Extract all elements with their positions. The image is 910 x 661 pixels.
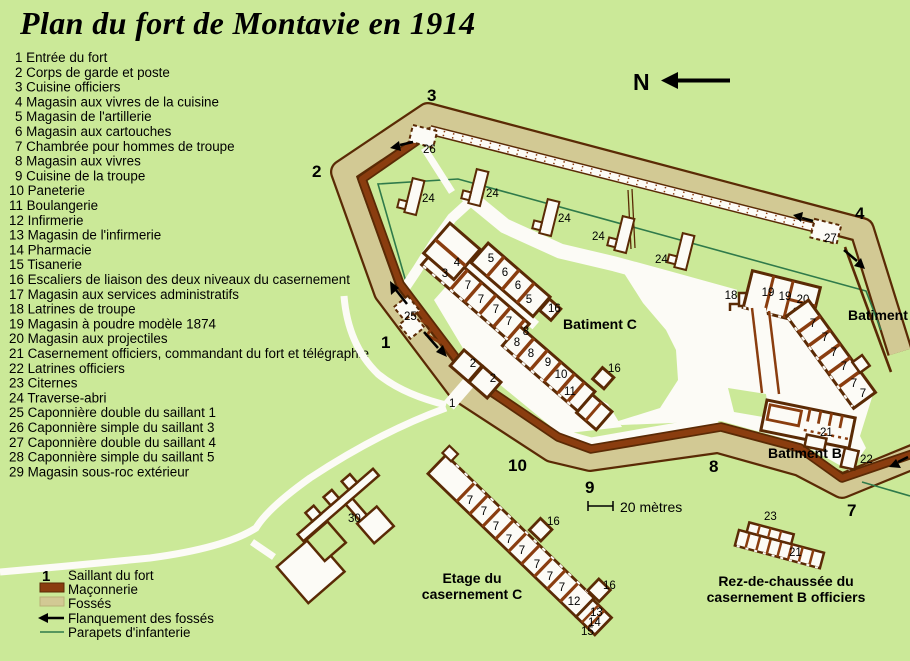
svg-text:5: 5 [488,253,494,265]
svg-text:25 Caponnière double du sailla: 25 Caponnière double du saillant 1 [9,405,216,420]
svg-text:Batiment C: Batiment C [563,316,637,332]
svg-text:18: 18 [725,290,738,302]
svg-text:27 Caponnière double du sailla: 27 Caponnière double du saillant 4 [9,435,217,450]
svg-text:18 Latrines de troupe: 18 Latrines de troupe [9,302,136,317]
svg-text:7: 7 [534,559,540,571]
svg-text:7: 7 [810,318,816,330]
svg-text:9: 9 [545,357,551,369]
svg-text:4: 4 [454,257,461,269]
svg-text:24: 24 [486,188,499,200]
svg-text:16 Escaliers de liaison des de: 16 Escaliers de liaison des deux niveaux… [9,272,350,287]
svg-text:3: 3 [427,86,436,105]
svg-text:1 Entrée du fort: 1 Entrée du fort [15,50,108,65]
svg-text:24: 24 [422,193,435,205]
svg-text:Fossés: Fossés [68,596,111,611]
svg-text:2: 2 [470,358,476,370]
svg-text:8 Magasin aux vivres: 8 Magasin aux vivres [15,154,141,169]
svg-text:2: 2 [490,373,496,385]
svg-text:7: 7 [822,332,828,344]
svg-text:6 Magasin aux cartouches: 6 Magasin aux cartouches [15,124,172,139]
svg-text:6: 6 [515,280,521,292]
svg-text:13 Magasin de l'infirmerie: 13 Magasin de l'infirmerie [9,228,161,243]
svg-text:21: 21 [789,547,802,559]
svg-text:7: 7 [467,495,473,507]
svg-text:2 Corps de garde et poste: 2 Corps de garde et poste [15,65,170,80]
svg-text:24: 24 [655,254,668,266]
svg-text:7: 7 [547,571,553,583]
svg-text:23 Citernes: 23 Citernes [9,376,78,391]
svg-text:2: 2 [312,162,321,181]
svg-text:7: 7 [847,501,856,520]
svg-text:28 Caponnière simple du sailla: 28 Caponnière simple du saillant 5 [9,450,214,465]
svg-text:24: 24 [558,213,571,225]
svg-text:3 Cuisine officiers: 3 Cuisine officiers [15,80,121,95]
svg-text:7: 7 [841,361,847,373]
svg-text:5: 5 [526,294,532,306]
svg-text:Saillant du fort: Saillant du fort [68,568,154,583]
svg-text:5 Magasin de l'artillerie: 5 Magasin de l'artillerie [15,109,152,124]
svg-text:17 Magasin aux services admini: 17 Magasin aux services administratifs [9,287,239,302]
svg-text:1: 1 [449,398,455,410]
svg-text:11 Boulangerie: 11 Boulangerie [9,198,98,213]
svg-text:Batiment A: Batiment A [848,307,910,323]
svg-text:25: 25 [404,311,417,323]
svg-text:casernement B officiers: casernement B officiers [707,589,866,605]
svg-text:16: 16 [547,516,560,528]
svg-text:7: 7 [559,582,565,594]
svg-text:7: 7 [851,378,857,390]
svg-text:10: 10 [508,456,527,475]
svg-text:4 Magasin aux vivres de la cui: 4 Magasin aux vivres de la cuisine [15,94,219,109]
svg-text:12 Infirmerie: 12 Infirmerie [9,213,83,228]
svg-text:7: 7 [493,521,499,533]
svg-text:16: 16 [603,580,616,592]
svg-text:7: 7 [478,294,484,306]
svg-text:10 Paneterie: 10 Paneterie [9,183,85,198]
svg-text:8: 8 [709,457,718,476]
svg-text:7: 7 [506,534,512,546]
svg-text:6: 6 [502,267,508,279]
svg-text:3: 3 [442,268,448,280]
svg-text:Parapets d'infanterie: Parapets d'infanterie [68,625,190,640]
svg-text:casernement C: casernement C [422,586,522,602]
svg-text:Flanquement des fossés: Flanquement des fossés [68,611,214,626]
svg-text:16: 16 [548,303,561,315]
svg-text:7: 7 [506,316,512,328]
svg-text:9: 9 [585,478,594,497]
svg-text:7 Chambrée pour hommes de trou: 7 Chambrée pour hommes de troupe [15,139,235,154]
svg-text:9 Cuisine de la troupe: 9 Cuisine de la troupe [15,168,145,183]
svg-text:7: 7 [465,280,471,292]
svg-text:20 mètres: 20 mètres [620,499,682,515]
svg-text:7: 7 [493,304,499,316]
svg-text:1: 1 [42,568,50,585]
svg-text:Plan du fort de Montavie en 19: Plan du fort de Montavie en 1914 [19,5,475,41]
svg-text:29 Magasin sous-roc extérieur: 29 Magasin sous-roc extérieur [9,464,190,479]
svg-text:10: 10 [555,369,568,381]
svg-text:26 Caponnière simple du sailla: 26 Caponnière simple du saillant 3 [9,420,214,435]
svg-text:15: 15 [581,626,594,638]
svg-text:8: 8 [523,326,529,338]
svg-text:24 Traverse-abri: 24 Traverse-abri [9,390,107,405]
svg-text:16: 16 [608,363,621,375]
svg-text:19: 19 [779,291,792,303]
svg-text:Batiment B: Batiment B [768,445,842,461]
svg-text:23: 23 [764,511,777,523]
svg-text:19: 19 [762,287,775,299]
svg-text:19 Magasin à poudre modèle 187: 19 Magasin à poudre modèle 1874 [9,316,217,331]
svg-text:27: 27 [824,233,837,245]
svg-text:1: 1 [381,333,390,352]
svg-text:Etage du: Etage du [442,570,501,586]
svg-text:22 Latrines officiers: 22 Latrines officiers [9,361,125,376]
svg-text:7: 7 [831,347,837,359]
svg-text:24: 24 [592,231,605,243]
svg-text:11: 11 [564,386,576,398]
svg-text:21 Casernement officiers, comm: 21 Casernement officiers, commandant du … [9,346,369,361]
svg-text:30: 30 [348,513,361,525]
svg-text:21: 21 [820,427,833,439]
svg-text:7: 7 [481,506,487,518]
svg-text:22: 22 [860,454,873,466]
svg-text:7: 7 [519,545,525,557]
svg-text:20 Magasin aux projectiles: 20 Magasin aux projectiles [9,331,168,346]
svg-text:7: 7 [860,388,866,400]
svg-text:26: 26 [423,144,436,156]
svg-text:15 Tisanerie: 15 Tisanerie [9,257,82,272]
svg-text:Rez-de-chaussée du: Rez-de-chaussée du [718,573,853,589]
svg-text:4: 4 [855,204,865,223]
svg-text:N: N [633,69,650,95]
svg-text:8: 8 [528,348,534,360]
svg-text:12: 12 [568,596,581,608]
svg-text:Maçonnerie: Maçonnerie [68,582,138,597]
svg-text:8: 8 [514,337,520,349]
svg-text:14 Pharmacie: 14 Pharmacie [9,242,92,257]
